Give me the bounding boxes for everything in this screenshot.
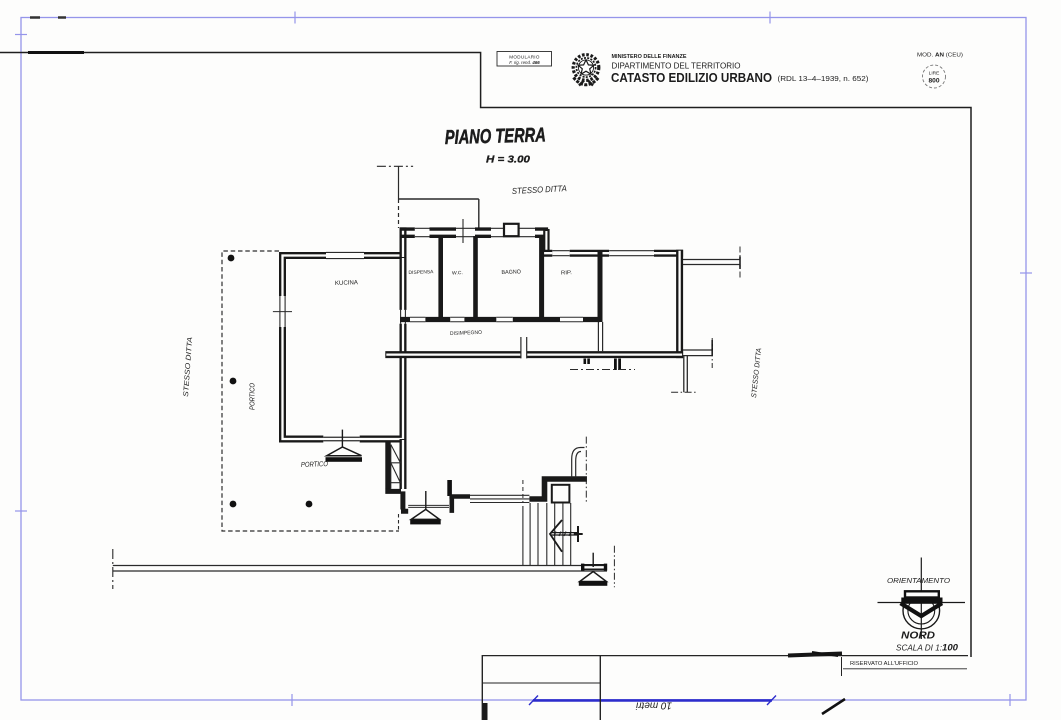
svg-text:PIANO TERRA: PIANO TERRA: [445, 124, 547, 149]
svg-text:F. rig. rend. 466: F. rig. rend. 466: [509, 60, 540, 65]
svg-text:CATASTO EDILIZIO URBANO: CATASTO EDILIZIO URBANO: [611, 71, 772, 85]
svg-text:DISIMPEGNO: DISIMPEGNO: [450, 330, 482, 337]
svg-text:MINISTERO DELLE FINANZE: MINISTERO DELLE FINANZE: [612, 54, 688, 60]
svg-text:H = 3.00: H = 3.00: [486, 154, 530, 166]
svg-text:DIPARTIMENTO DEL TERRITORIO: DIPARTIMENTO DEL TERRITORIO: [612, 62, 741, 71]
svg-text:SCALA DI 1:100: SCALA DI 1:100: [896, 642, 959, 653]
svg-text:(RDL 13–4–1939, n. 652): (RDL 13–4–1939, n. 652): [778, 76, 869, 83]
svg-text:PORTICO: PORTICO: [301, 459, 329, 469]
svg-text:800: 800: [928, 78, 939, 85]
svg-text:RISERVATO ALL’UFFICIO: RISERVATO ALL’UFFICIO: [850, 661, 918, 667]
svg-text:MOD. AN (CEU): MOD. AN (CEU): [917, 53, 963, 59]
svg-text:ORIENTAMENTO: ORIENTAMENTO: [887, 576, 950, 585]
svg-text:BAGNO: BAGNO: [501, 269, 521, 276]
svg-text:10 metri: 10 metri: [635, 700, 672, 711]
svg-text:MODULARIO: MODULARIO: [509, 55, 540, 60]
svg-text:NORD: NORD: [901, 631, 935, 642]
svg-text:RIP.: RIP.: [561, 270, 573, 276]
svg-text:W.C.: W.C.: [452, 270, 463, 276]
svg-text:KUCINA: KUCINA: [335, 279, 359, 287]
svg-text:DISPENSA: DISPENSA: [408, 269, 434, 276]
svg-text:PORTICO: PORTICO: [250, 383, 257, 410]
svg-text:LIRE: LIRE: [929, 71, 940, 77]
